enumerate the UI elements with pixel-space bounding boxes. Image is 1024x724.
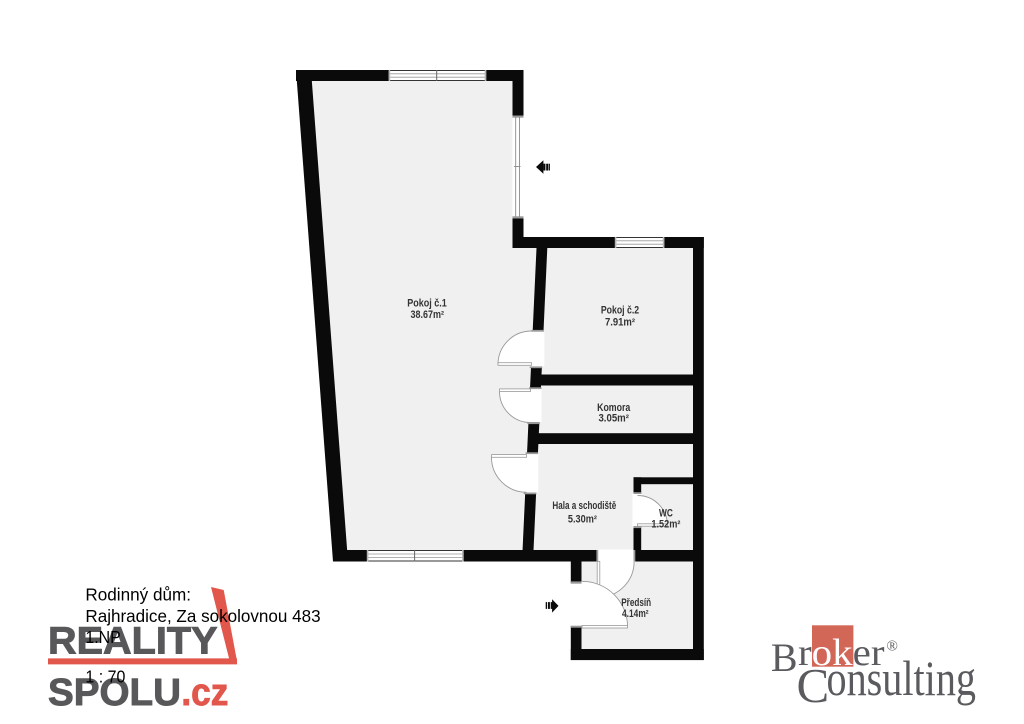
- svg-text:3.05m²: 3.05m²: [598, 413, 629, 425]
- svg-text:B: B: [771, 635, 798, 680]
- svg-text:Pokoj č.2: Pokoj č.2: [601, 305, 639, 317]
- svg-text:1 : 70: 1 : 70: [85, 667, 125, 687]
- svg-text:7.91m²: 7.91m²: [605, 316, 635, 328]
- svg-text:38.67m²: 38.67m²: [411, 309, 445, 321]
- svg-text:1.52m²: 1.52m²: [651, 519, 680, 531]
- svg-text:Hala a schodiště: Hala a schodiště: [552, 500, 616, 512]
- svg-text:4.14m²: 4.14m²: [622, 608, 649, 620]
- svg-text:onsulting: onsulting: [827, 650, 977, 706]
- svg-text:Rodinný dům:: Rodinný dům:: [85, 585, 191, 605]
- svg-text:REALITY: REALITY: [48, 621, 218, 663]
- svg-text:1.NP: 1.NP: [85, 627, 120, 647]
- svg-text:C: C: [797, 658, 830, 713]
- svg-text:.cz: .cz: [181, 672, 228, 714]
- svg-text:Rajhradice, Za sokolovnou 483: Rajhradice, Za sokolovnou 483: [85, 606, 320, 626]
- svg-text:Pokoj č.1: Pokoj č.1: [407, 298, 447, 310]
- svg-text:5.30m²: 5.30m²: [568, 513, 597, 525]
